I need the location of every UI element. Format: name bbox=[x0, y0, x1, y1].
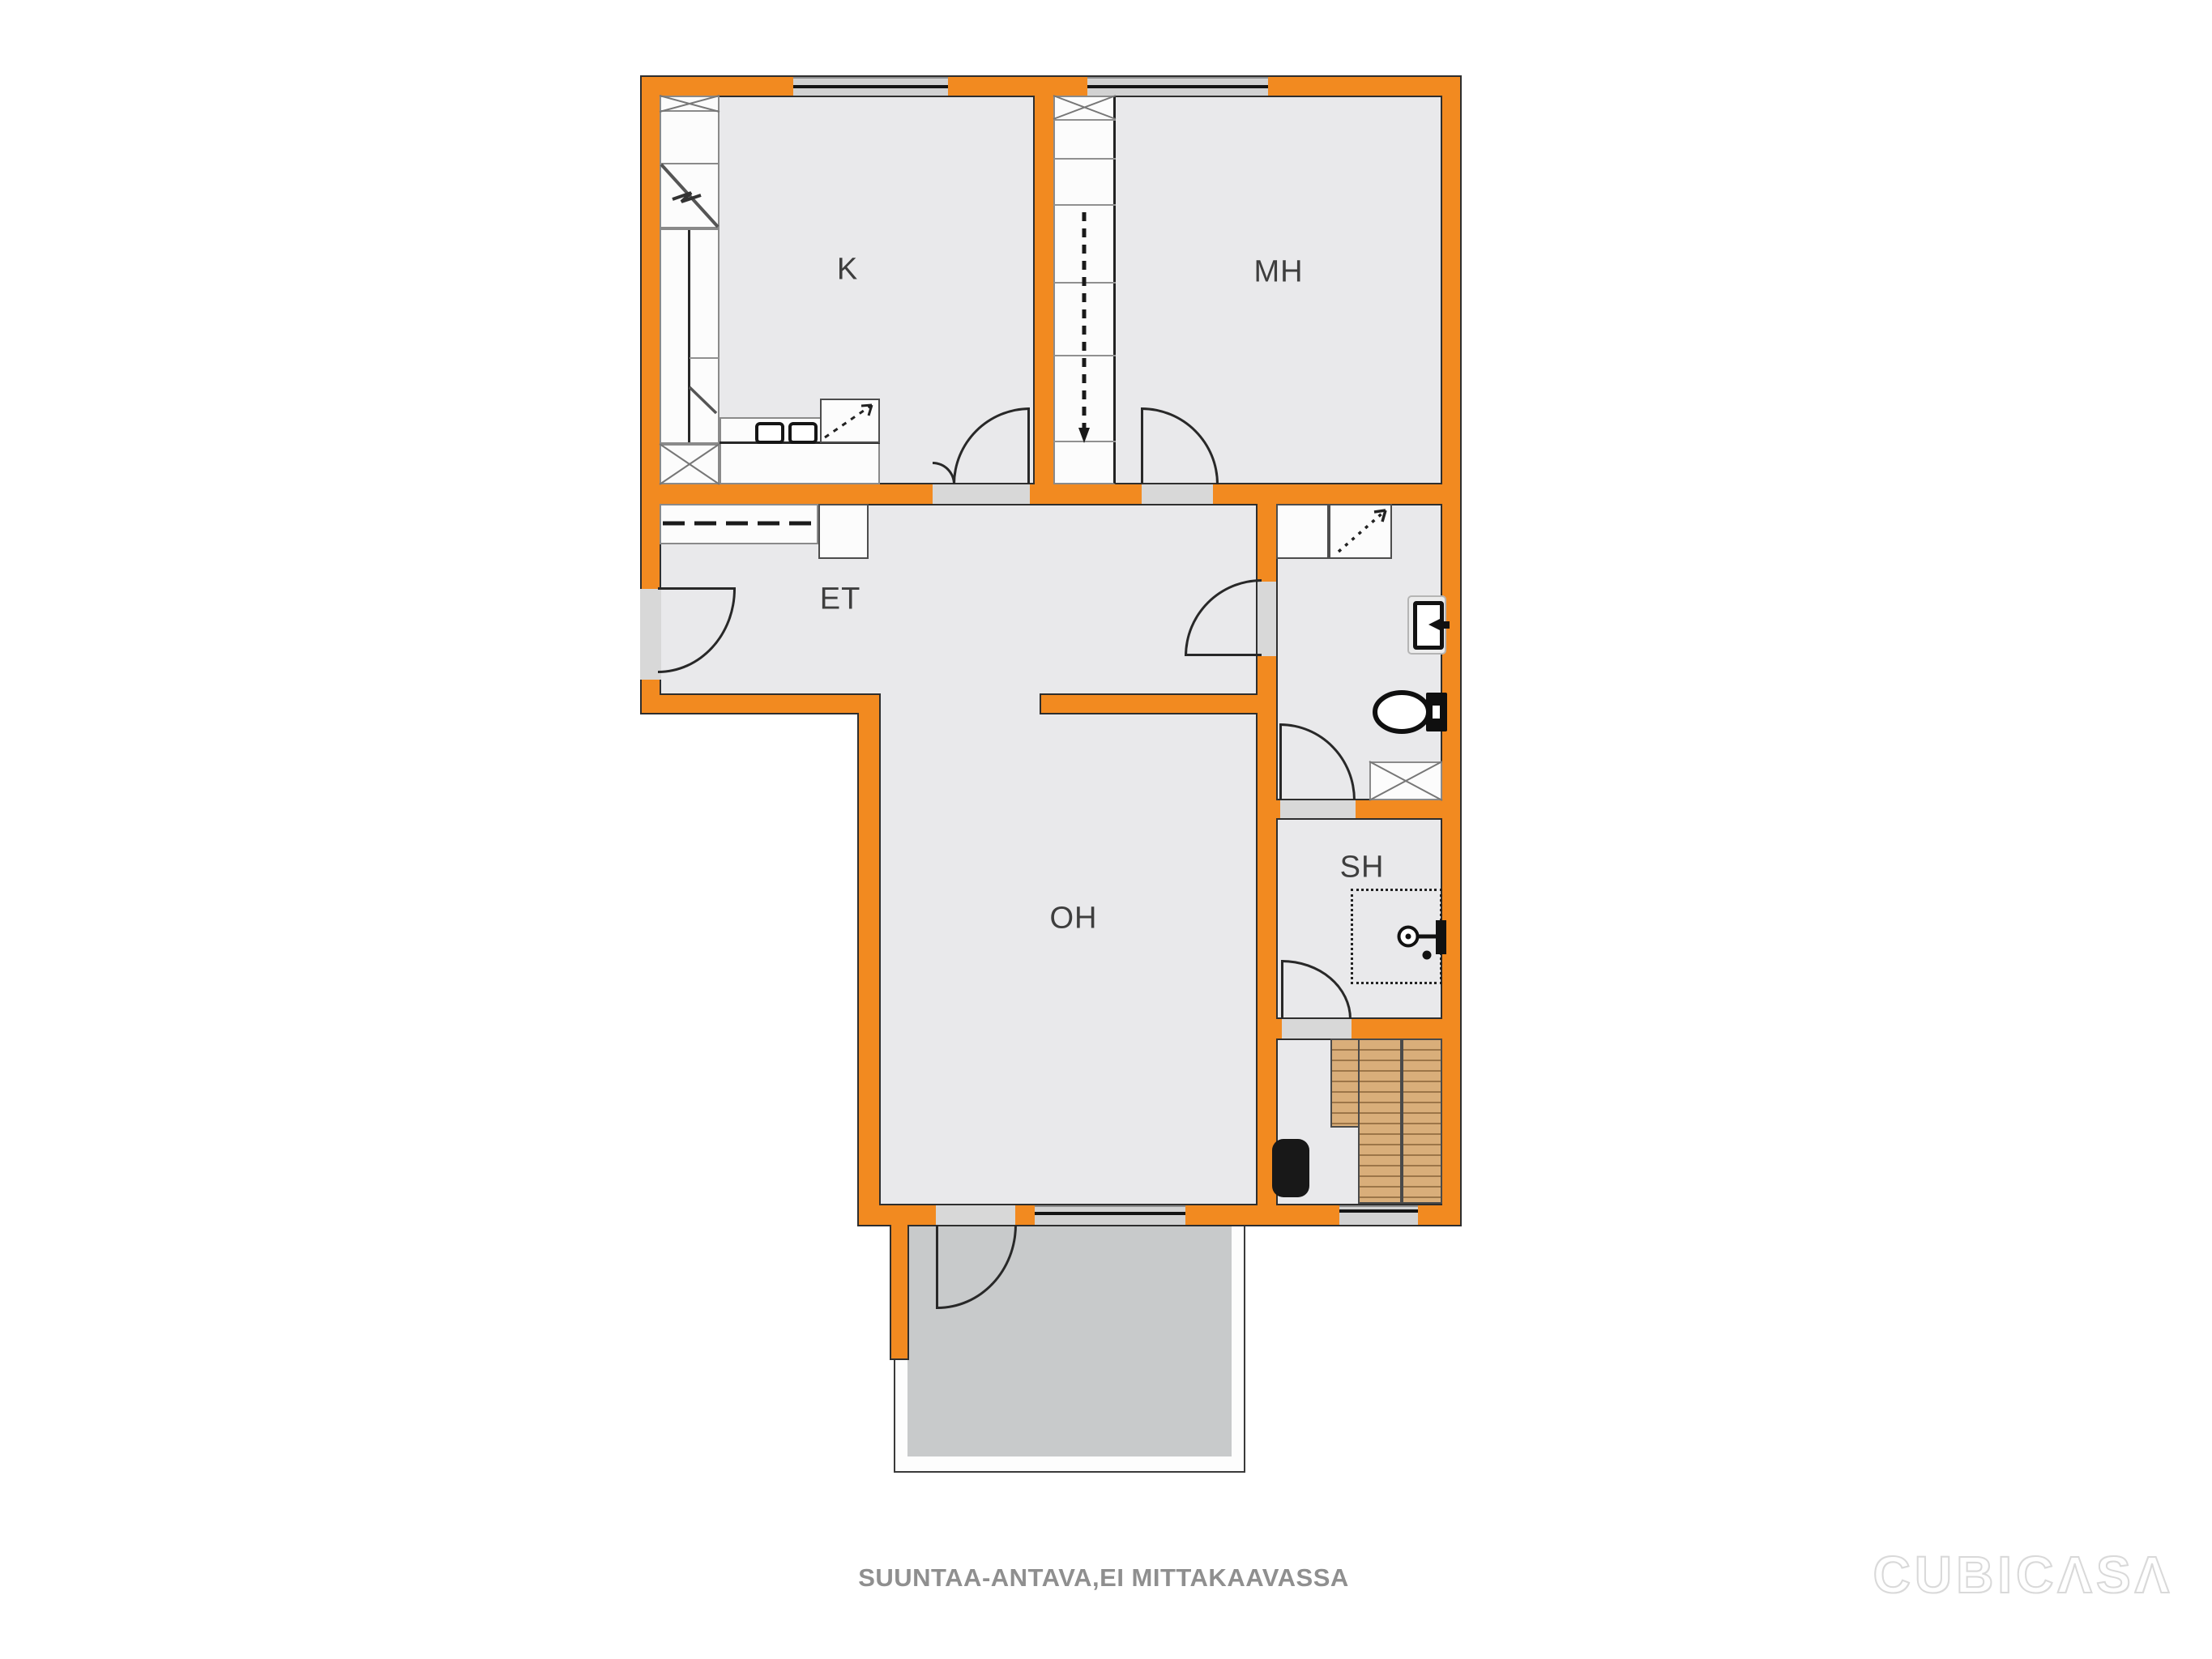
room-label-entry: ET bbox=[820, 582, 861, 617]
room-label-shower: SH bbox=[1340, 851, 1385, 885]
bedroom-door-leaf bbox=[1141, 407, 1143, 484]
shower-door-leaf bbox=[1279, 723, 1282, 800]
bathroom-cabinet bbox=[1276, 504, 1329, 559]
window-bedroom-glass bbox=[1087, 85, 1268, 88]
stove-burner bbox=[755, 422, 784, 444]
washing-machine-space bbox=[1329, 504, 1392, 559]
threshold-kitchen-door bbox=[933, 484, 1030, 504]
entry-closet bbox=[660, 504, 818, 544]
closet-divider bbox=[1053, 158, 1116, 160]
room-label-kitchen: K bbox=[837, 253, 858, 288]
room-floor-passage bbox=[879, 695, 1041, 713]
room-label-bedroom: MH bbox=[1253, 255, 1303, 290]
threshold-balcony-door bbox=[936, 1205, 1015, 1225]
sauna-stove bbox=[1272, 1139, 1309, 1197]
floorplan-page: K MH ET OH SH SUUNTAA-ANTAVA,EI MITTAKAA… bbox=[0, 0, 2212, 1659]
window-sauna-glass bbox=[1339, 1209, 1418, 1213]
window-livingroom bbox=[1035, 1205, 1185, 1225]
closet-divider bbox=[1053, 355, 1116, 356]
entry-closet-deep bbox=[818, 504, 869, 559]
kitchen-cabinet bbox=[660, 110, 720, 164]
wall-entry-bottom bbox=[642, 695, 879, 713]
stove-burner bbox=[788, 422, 818, 444]
bathroom-cabinet-x bbox=[1369, 761, 1442, 800]
kitchen-fridge bbox=[660, 163, 720, 228]
threshold-shower-door bbox=[1280, 800, 1356, 818]
sink-basin bbox=[1413, 601, 1444, 650]
wall-mid-horizontal bbox=[642, 484, 1460, 504]
kitchen-cabinet-x bbox=[660, 96, 720, 112]
kitchen-door-leaf bbox=[1027, 407, 1030, 484]
threshold-sauna-door bbox=[1282, 1019, 1352, 1038]
window-sauna bbox=[1339, 1205, 1418, 1225]
wall-balcony-stub bbox=[891, 1225, 907, 1358]
balcony-door-leaf bbox=[936, 1225, 938, 1309]
window-livingroom-glass bbox=[1035, 1212, 1185, 1215]
wall-entry-stub bbox=[1041, 695, 1276, 713]
threshold-bedroom-door bbox=[1142, 484, 1213, 504]
dishwasher bbox=[820, 399, 880, 443]
sauna-bench bbox=[1402, 1038, 1442, 1204]
room-label-livingroom: OH bbox=[1050, 902, 1098, 936]
closet-divider bbox=[1053, 204, 1116, 206]
sauna-bench bbox=[1358, 1038, 1402, 1204]
kitchen-cabinet-x-bottom bbox=[660, 444, 720, 484]
shower-area bbox=[1351, 889, 1442, 984]
closet-divider bbox=[1053, 441, 1116, 442]
disclaimer-text: SUUNTAA-ANTAVA,EI MITTAKAAVASSA bbox=[858, 1563, 1349, 1593]
wall-oh-left bbox=[859, 695, 879, 1225]
closet-divider bbox=[1053, 282, 1116, 284]
kitchen-counter-divider bbox=[690, 357, 720, 359]
wall-k-mh-divider bbox=[1035, 96, 1053, 484]
front-door-leaf bbox=[658, 587, 736, 590]
cubicasa-logo: CUBICΛSΛ bbox=[1873, 1545, 2174, 1605]
room-floor-livingroom bbox=[879, 713, 1258, 1205]
sauna-bench bbox=[1330, 1038, 1360, 1128]
wall-top bbox=[642, 77, 1460, 96]
closet-divider bbox=[1053, 119, 1116, 121]
sauna-door-leaf bbox=[1281, 960, 1283, 1019]
bathroom-door-leaf bbox=[1185, 654, 1262, 656]
kitchen-counter-edge bbox=[688, 230, 690, 442]
window-kitchen-glass bbox=[793, 85, 948, 88]
bedroom-closet bbox=[1053, 96, 1116, 484]
